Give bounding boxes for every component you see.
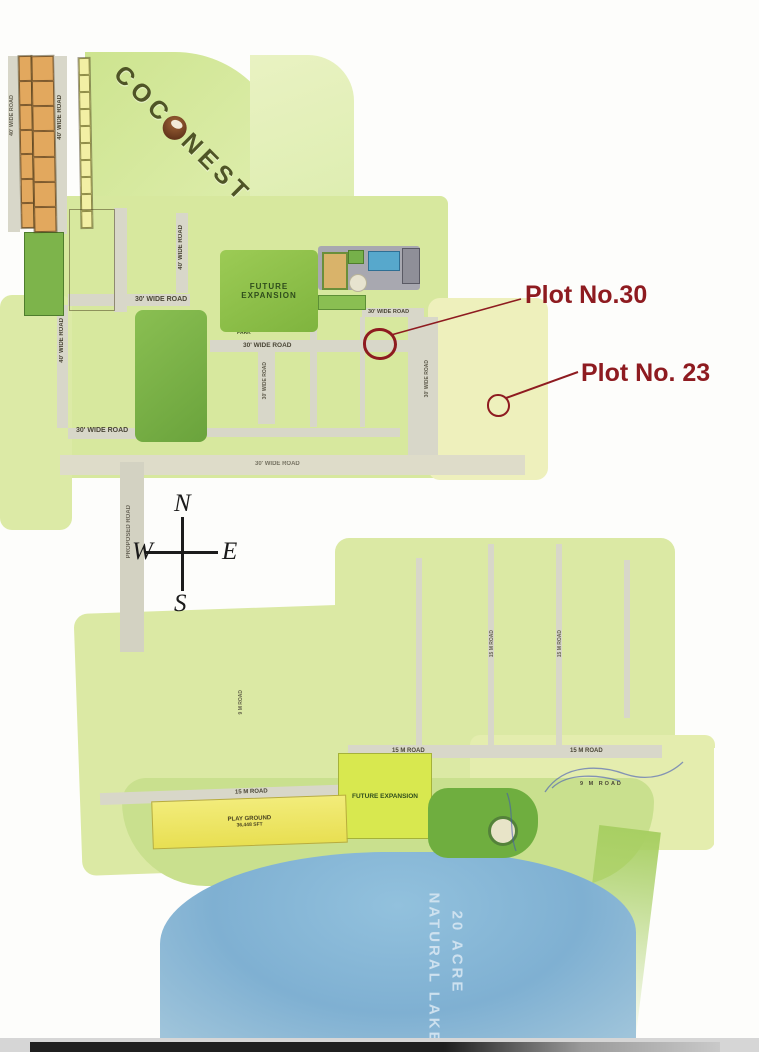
playground: PLAY GROUND 36,448 SFT — [151, 795, 348, 850]
road-label-30-pinks: 30' WIDE ROAD — [135, 296, 187, 303]
lake-label-line2: NATURAL LAKE — [423, 893, 446, 1013]
road-strip-mid — [55, 56, 67, 234]
plot-cell — [21, 179, 34, 204]
plot-cell — [32, 81, 54, 107]
plot-cluster-pink-top-a — [70, 210, 114, 310]
plot-cell — [81, 194, 92, 211]
compass-south: S — [174, 590, 187, 618]
road-label-40-pink2: 40' WIDE ROAD — [178, 225, 184, 270]
road-label-30-h-east: 30' WIDE ROAD — [424, 360, 430, 397]
site-map: 20 ACRE NATURAL LAKE 40' WIDE ROAD 40' W… — [0, 0, 759, 1052]
plot30-annotation: Plot No.30 — [525, 281, 647, 310]
plot-cell — [80, 160, 91, 177]
road-label-30-gh: 30' WIDE ROAD — [368, 309, 409, 315]
swimming-pool — [368, 251, 400, 271]
clubhouse-annex — [402, 248, 420, 284]
road-label-15m-mid2: 15 M ROAD — [557, 630, 563, 657]
future-expansion-2: FUTURE EXPANSION — [338, 753, 432, 839]
plot-cell — [79, 109, 90, 126]
road-label-40-strip: 40' WIDE ROAD — [57, 95, 63, 140]
plot-cell — [19, 56, 32, 81]
road-label-9m-se: 9 M ROAD — [580, 781, 623, 787]
road-gh — [360, 317, 365, 427]
future-expansion-1-label: FUTURE EXPANSION — [234, 282, 304, 300]
plot-cell — [20, 130, 33, 155]
compass-east: E — [222, 538, 237, 566]
road-label-15m-mid1: 15 M ROAD — [489, 630, 495, 657]
road-mid-gap1 — [416, 558, 422, 748]
plot-cell — [33, 131, 55, 157]
road-label-40-orange-strip: 40' WIDE ROAD — [59, 318, 65, 363]
plot-cell — [80, 126, 91, 143]
lake-label: 20 ACRE NATURAL LAKE — [423, 893, 468, 1013]
lake — [160, 852, 636, 1044]
plot-cell — [79, 92, 90, 109]
plot-cell — [32, 106, 54, 132]
road-label-40-strip-left: 40' WIDE ROAD — [9, 95, 15, 136]
road-label-30-upper-south: 30' WIDE ROAD — [255, 461, 300, 467]
plot30-circle — [363, 328, 397, 360]
plot-cell — [19, 80, 32, 105]
road-label-30-ef: 30' WIDE ROAD — [243, 342, 292, 349]
compass-line-vertical — [181, 517, 184, 591]
road-h-east — [408, 317, 438, 457]
compass-line-horizontal — [146, 551, 218, 554]
central-park — [135, 310, 207, 442]
south-park — [428, 788, 538, 858]
plot-cell — [80, 143, 91, 160]
clubhouse-lawn — [318, 295, 366, 310]
plot-cell — [34, 207, 56, 233]
plot-cell — [33, 156, 55, 182]
plot-cell — [79, 58, 90, 75]
scan-strip-dark — [30, 1042, 720, 1052]
east-bump — [428, 298, 548, 480]
plot23-annotation: Plot No. 23 — [581, 359, 710, 388]
compass-west: W — [132, 538, 153, 566]
road-label-30-west-e: 30' WIDE ROAD — [262, 362, 268, 399]
plot-column — [31, 56, 56, 232]
plot-cell — [20, 154, 33, 179]
south-park-feature — [488, 816, 518, 846]
road-label-30-below-strip: 30' WIDE ROAD — [76, 427, 128, 434]
plot-cluster-strip-b — [31, 56, 56, 232]
park-square — [24, 232, 64, 316]
white-step-mask — [714, 748, 759, 868]
clubhouse-building — [322, 252, 348, 290]
compass-north: N — [174, 490, 191, 518]
plot-cell — [81, 177, 92, 194]
clubhouse-court — [348, 250, 364, 264]
road-label-15m-b: 15 M ROAD — [570, 748, 603, 754]
plot-cell — [79, 75, 90, 92]
plot-cell — [21, 203, 34, 228]
plot-cell — [31, 56, 53, 82]
clubhouse-roundabout — [349, 274, 367, 292]
road-label-15m-sw: 15 M ROAD — [235, 788, 268, 795]
road-mid-gap4 — [624, 560, 630, 718]
road-fg — [310, 317, 317, 427]
road-label-9m-sw: 9 M ROAD — [238, 690, 244, 714]
playground-area-label: 36,448 SFT — [236, 822, 262, 829]
future-expansion-2-label: FUTURE EXPANSION — [352, 793, 418, 800]
future-expansion-1: FUTURE EXPANSION — [220, 250, 318, 332]
road-above-bottom-row — [207, 428, 400, 437]
plot-cell — [34, 182, 56, 208]
plot23-circle — [487, 394, 510, 417]
lake-label-line1: 20 ACRE — [445, 893, 468, 1013]
plot-cell — [19, 105, 32, 130]
